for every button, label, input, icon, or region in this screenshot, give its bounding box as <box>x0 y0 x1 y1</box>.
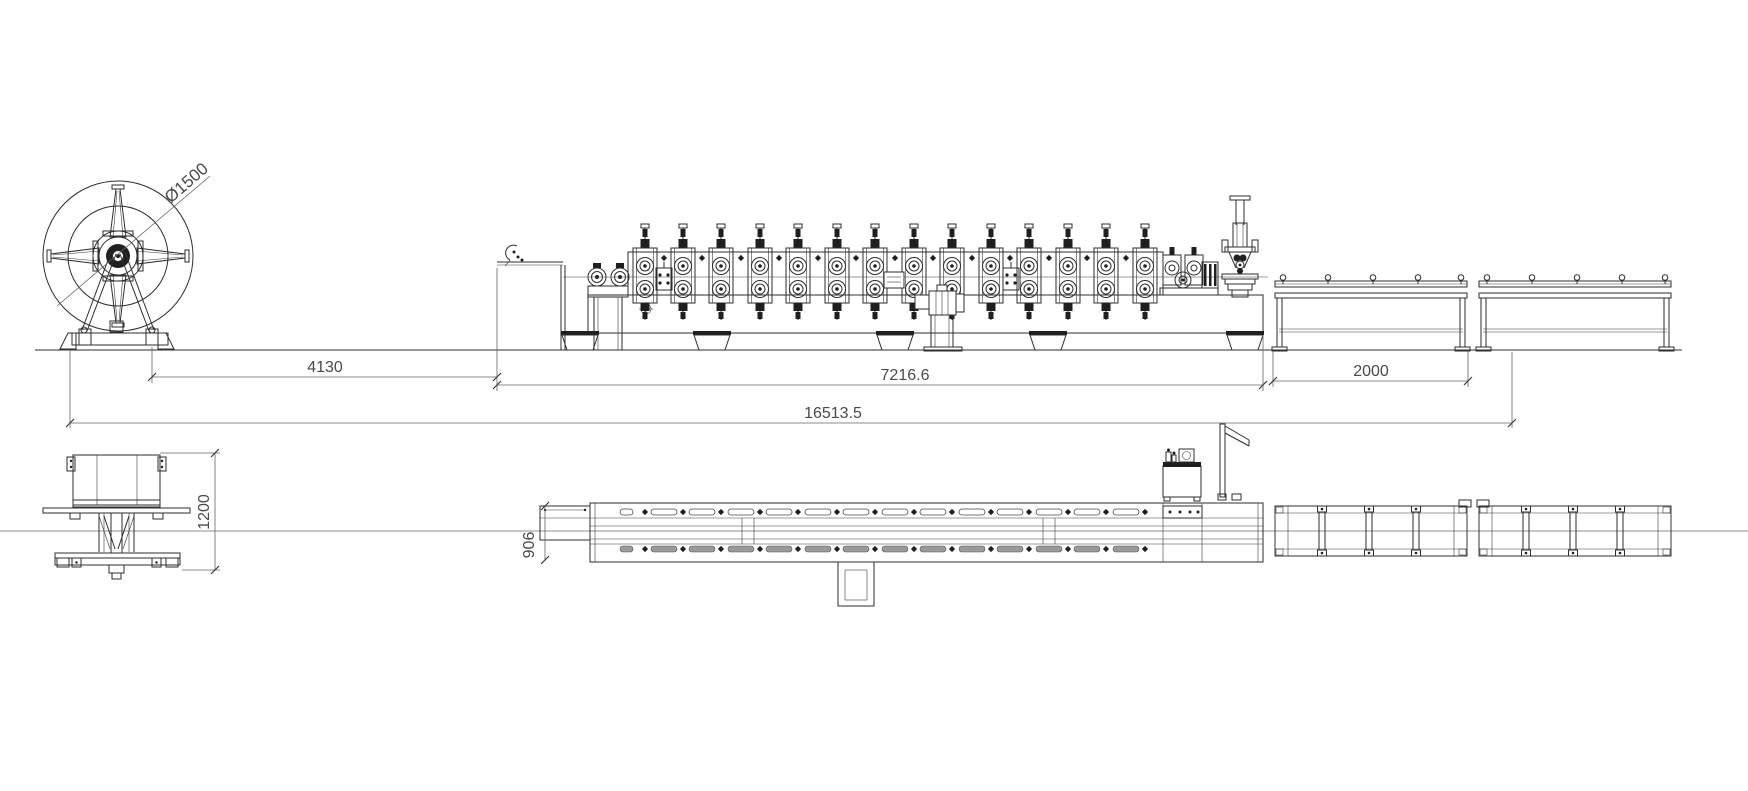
roller-stand <box>979 224 1003 320</box>
cad-drawing: Ø1500 4130 7216.6 2000 16513.5 1200 <box>0 0 1748 791</box>
roll-former-plan <box>540 503 1263 606</box>
roller-stand <box>1094 224 1118 320</box>
roller-stand <box>1133 224 1157 320</box>
dim-runout-table-length: 2000 <box>1269 351 1472 387</box>
roll-former-elevation <box>497 196 1268 351</box>
dim-label-coil-diameter: Ø1500 <box>161 159 212 207</box>
roller-stand <box>786 224 810 320</box>
roller-stand <box>671 224 695 320</box>
gearbox <box>884 272 904 288</box>
dim-uncoiler-to-machine: 4130 <box>148 268 501 391</box>
entry-guide-plan <box>540 506 590 540</box>
dim-label-4130: 4130 <box>307 359 343 376</box>
runout-table-2-elevation <box>1476 275 1674 351</box>
roller-stand <box>1056 224 1080 320</box>
drive-motor <box>915 285 964 351</box>
roller-stand <box>825 224 849 320</box>
bed-dowel-marks <box>661 255 1129 261</box>
bottom-roller-slot-band <box>620 546 1148 552</box>
decoiler-plan <box>43 455 190 579</box>
roller-stand <box>709 224 733 320</box>
hydraulic-unit-plan <box>1163 449 1201 502</box>
top-roller-slot-band <box>620 509 1148 515</box>
strip-guide-block <box>656 262 672 290</box>
runout-table-1-elevation <box>1272 275 1470 351</box>
spreader-arm <box>47 241 99 271</box>
straightener-unit <box>1160 247 1218 295</box>
spreader-arm <box>137 241 189 271</box>
spreader-arm <box>103 275 133 327</box>
dim-total-line-length: 16513.5 <box>66 348 1516 428</box>
cutoff-press-plan <box>1163 503 1202 562</box>
plan-view <box>0 424 1748 606</box>
dim-label-7216-6: 7216.6 <box>881 367 930 384</box>
elevation-view <box>35 181 1682 351</box>
drive-motor-plan <box>838 562 874 606</box>
dim-machine-inlet-width: 906 <box>521 502 549 564</box>
cutoff-press-elevation <box>1222 196 1258 297</box>
dim-label-1200: 1200 <box>196 494 213 530</box>
machine-feet <box>561 331 1264 350</box>
spreader-arm <box>103 185 133 237</box>
decoiler-elevation <box>43 181 193 349</box>
roller-stand <box>1017 224 1041 320</box>
dim-label-16513-5: 16513.5 <box>804 405 862 422</box>
dim-coil-diameter: Ø1500 <box>57 159 212 306</box>
control-console-plan <box>1218 424 1249 500</box>
roller-stand <box>633 224 657 320</box>
mandrel-hub <box>93 231 143 281</box>
dim-label-2000: 2000 <box>1353 363 1389 380</box>
decoiler-base <box>60 321 174 349</box>
roller-stand <box>748 224 772 320</box>
roller-stand <box>863 224 887 320</box>
dim-label-906: 906 <box>521 532 538 559</box>
